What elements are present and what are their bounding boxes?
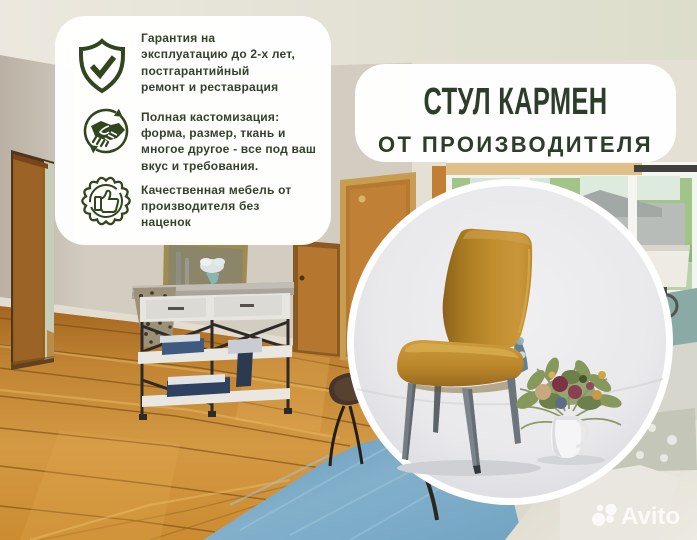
svg-text:Avito: Avito [621, 503, 680, 530]
